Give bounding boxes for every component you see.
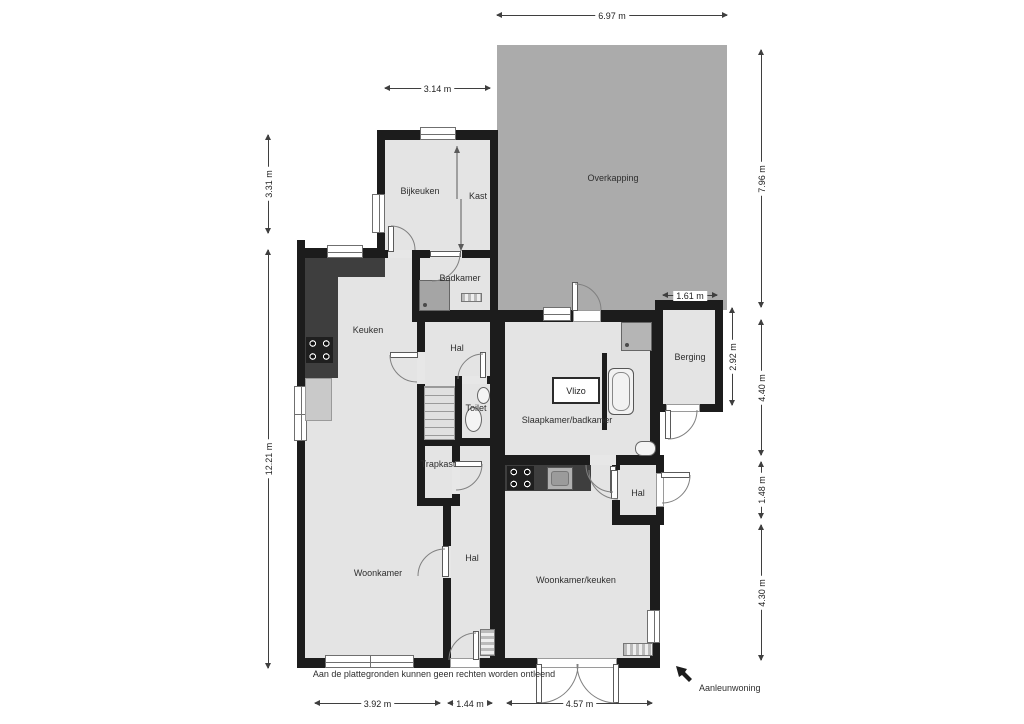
berging-door-opening (666, 404, 700, 412)
room-label-overkapping: Overkapping (587, 173, 638, 183)
room-label-woonkamer-keuken: Woonkamer/keuken (536, 575, 616, 585)
room-label-hal-entree: Hal (631, 488, 645, 498)
room-label-trapkast: Trapkast (421, 459, 456, 469)
window-icon (327, 245, 363, 258)
door-leaf (572, 282, 578, 311)
washbasin-icon (635, 441, 656, 456)
french-door-opening (537, 658, 617, 668)
dimension-bottom-1: 3.92 m (315, 703, 440, 704)
dimension-berging-width: 1.61 m (663, 295, 717, 296)
dimension-label: 3.31 m (264, 167, 274, 201)
wall (655, 300, 663, 412)
floor-plan: Vlizo (0, 0, 1024, 724)
wall (655, 300, 723, 310)
room-label-kast: Kast (469, 191, 487, 201)
wall (715, 300, 723, 412)
dimension-label: 6.97 m (595, 11, 629, 21)
stove-icon (306, 337, 333, 363)
radiator-icon (480, 629, 495, 656)
door-leaf (473, 631, 479, 660)
door-leaf (390, 352, 418, 358)
window-icon (647, 610, 660, 643)
shower-icon (419, 280, 450, 311)
aanleunwoning-label: Aanleunwoning (699, 683, 761, 693)
room-label-hal-midden: Hal (465, 553, 479, 563)
dimension-bottom-2: 1.44 m (448, 703, 492, 704)
room-label-hal-boven: Hal (450, 343, 464, 353)
door-opening (590, 455, 616, 465)
dimension-right-1: 7.96 m (761, 50, 762, 307)
kitchen-cabinet (305, 378, 332, 421)
wall (297, 240, 305, 668)
dimension-right-2: 4.40 m (761, 320, 762, 455)
window-icon (372, 194, 385, 233)
wall (455, 438, 498, 446)
dimension-label: 4.30 m (757, 576, 767, 610)
room-label-toilet: Toilet (465, 403, 486, 413)
room-label-berging: Berging (674, 352, 705, 362)
room-label-woonkamer: Woonkamer (354, 568, 402, 578)
wall (417, 446, 425, 506)
window-icon (543, 307, 571, 321)
wall (490, 322, 505, 658)
dimension-top-overkapping: 6.97 m (497, 15, 727, 16)
door-swing-icon (577, 664, 616, 703)
dimension-berging-height: 2.92 m (732, 308, 733, 405)
door-leaf (442, 546, 449, 577)
dimension-label: 7.96 m (757, 162, 767, 196)
wall (412, 310, 505, 322)
door-leaf (388, 226, 394, 252)
door-leaf (480, 352, 486, 378)
dimension-left-lower: 12.21 m (268, 250, 269, 668)
vlizo-label: Vlizo (566, 386, 586, 396)
door-swing-icon (668, 410, 697, 439)
dimension-label: 1.61 m (673, 291, 707, 301)
dimension-bottom-3: 4.57 m (507, 703, 652, 704)
radiator-icon (623, 643, 653, 656)
washbasin-icon (477, 387, 490, 404)
wall (490, 130, 498, 322)
door-leaf (661, 472, 690, 478)
shower-icon (621, 322, 652, 351)
dimension-left-upper: 3.31 m (268, 135, 269, 233)
dimension-top-bijkeuken: 3.14 m (385, 88, 490, 89)
terrace-door-opening (573, 310, 601, 322)
dimension-label: 3.92 m (361, 699, 395, 709)
radiator-icon (461, 293, 482, 302)
dimension-right-4: 4.30 m (761, 525, 762, 660)
door-swing-icon (662, 475, 690, 503)
dimension-label: 12.21 m (264, 440, 274, 479)
stove-icon (507, 466, 534, 490)
room-label-keuken: Keuken (353, 325, 384, 335)
door-opening (417, 352, 425, 384)
room-label-bijkeuken: Bijkeuken (400, 186, 439, 196)
vlizo-hatch-icon: Vlizo (552, 377, 600, 404)
dimension-label: 3.14 m (421, 84, 455, 94)
window-icon (325, 655, 414, 668)
dimension-label: 4.57 m (563, 699, 597, 709)
direction-arrow-icon (676, 666, 692, 682)
sink-icon (547, 467, 573, 490)
door-leaf (665, 410, 671, 439)
door-leaf (611, 470, 618, 499)
entry-door-opening (656, 473, 664, 507)
wall (455, 383, 462, 446)
window-icon (420, 127, 456, 140)
disclaimer-text: Aan de plattegronden kunnen geen rechten… (313, 669, 555, 679)
door-leaf (613, 664, 619, 703)
dimension-label: 4.40 m (757, 371, 767, 405)
dimension-label: 2.92 m (728, 340, 738, 374)
dimension-right-3: 1.48 m (761, 462, 762, 518)
dimension-label: 1.44 m (453, 699, 487, 709)
door-leaf (455, 461, 482, 467)
bathtub-icon (608, 368, 634, 415)
wall (443, 506, 451, 658)
dimension-label: 1.48 m (757, 473, 767, 507)
room-label-slaapkamer-badkamer: Slaapkamer/badkamer (522, 415, 613, 425)
door-leaf (430, 251, 461, 257)
room-label-badkamer: Badkamer (439, 273, 480, 283)
stairs-icon (424, 386, 455, 440)
